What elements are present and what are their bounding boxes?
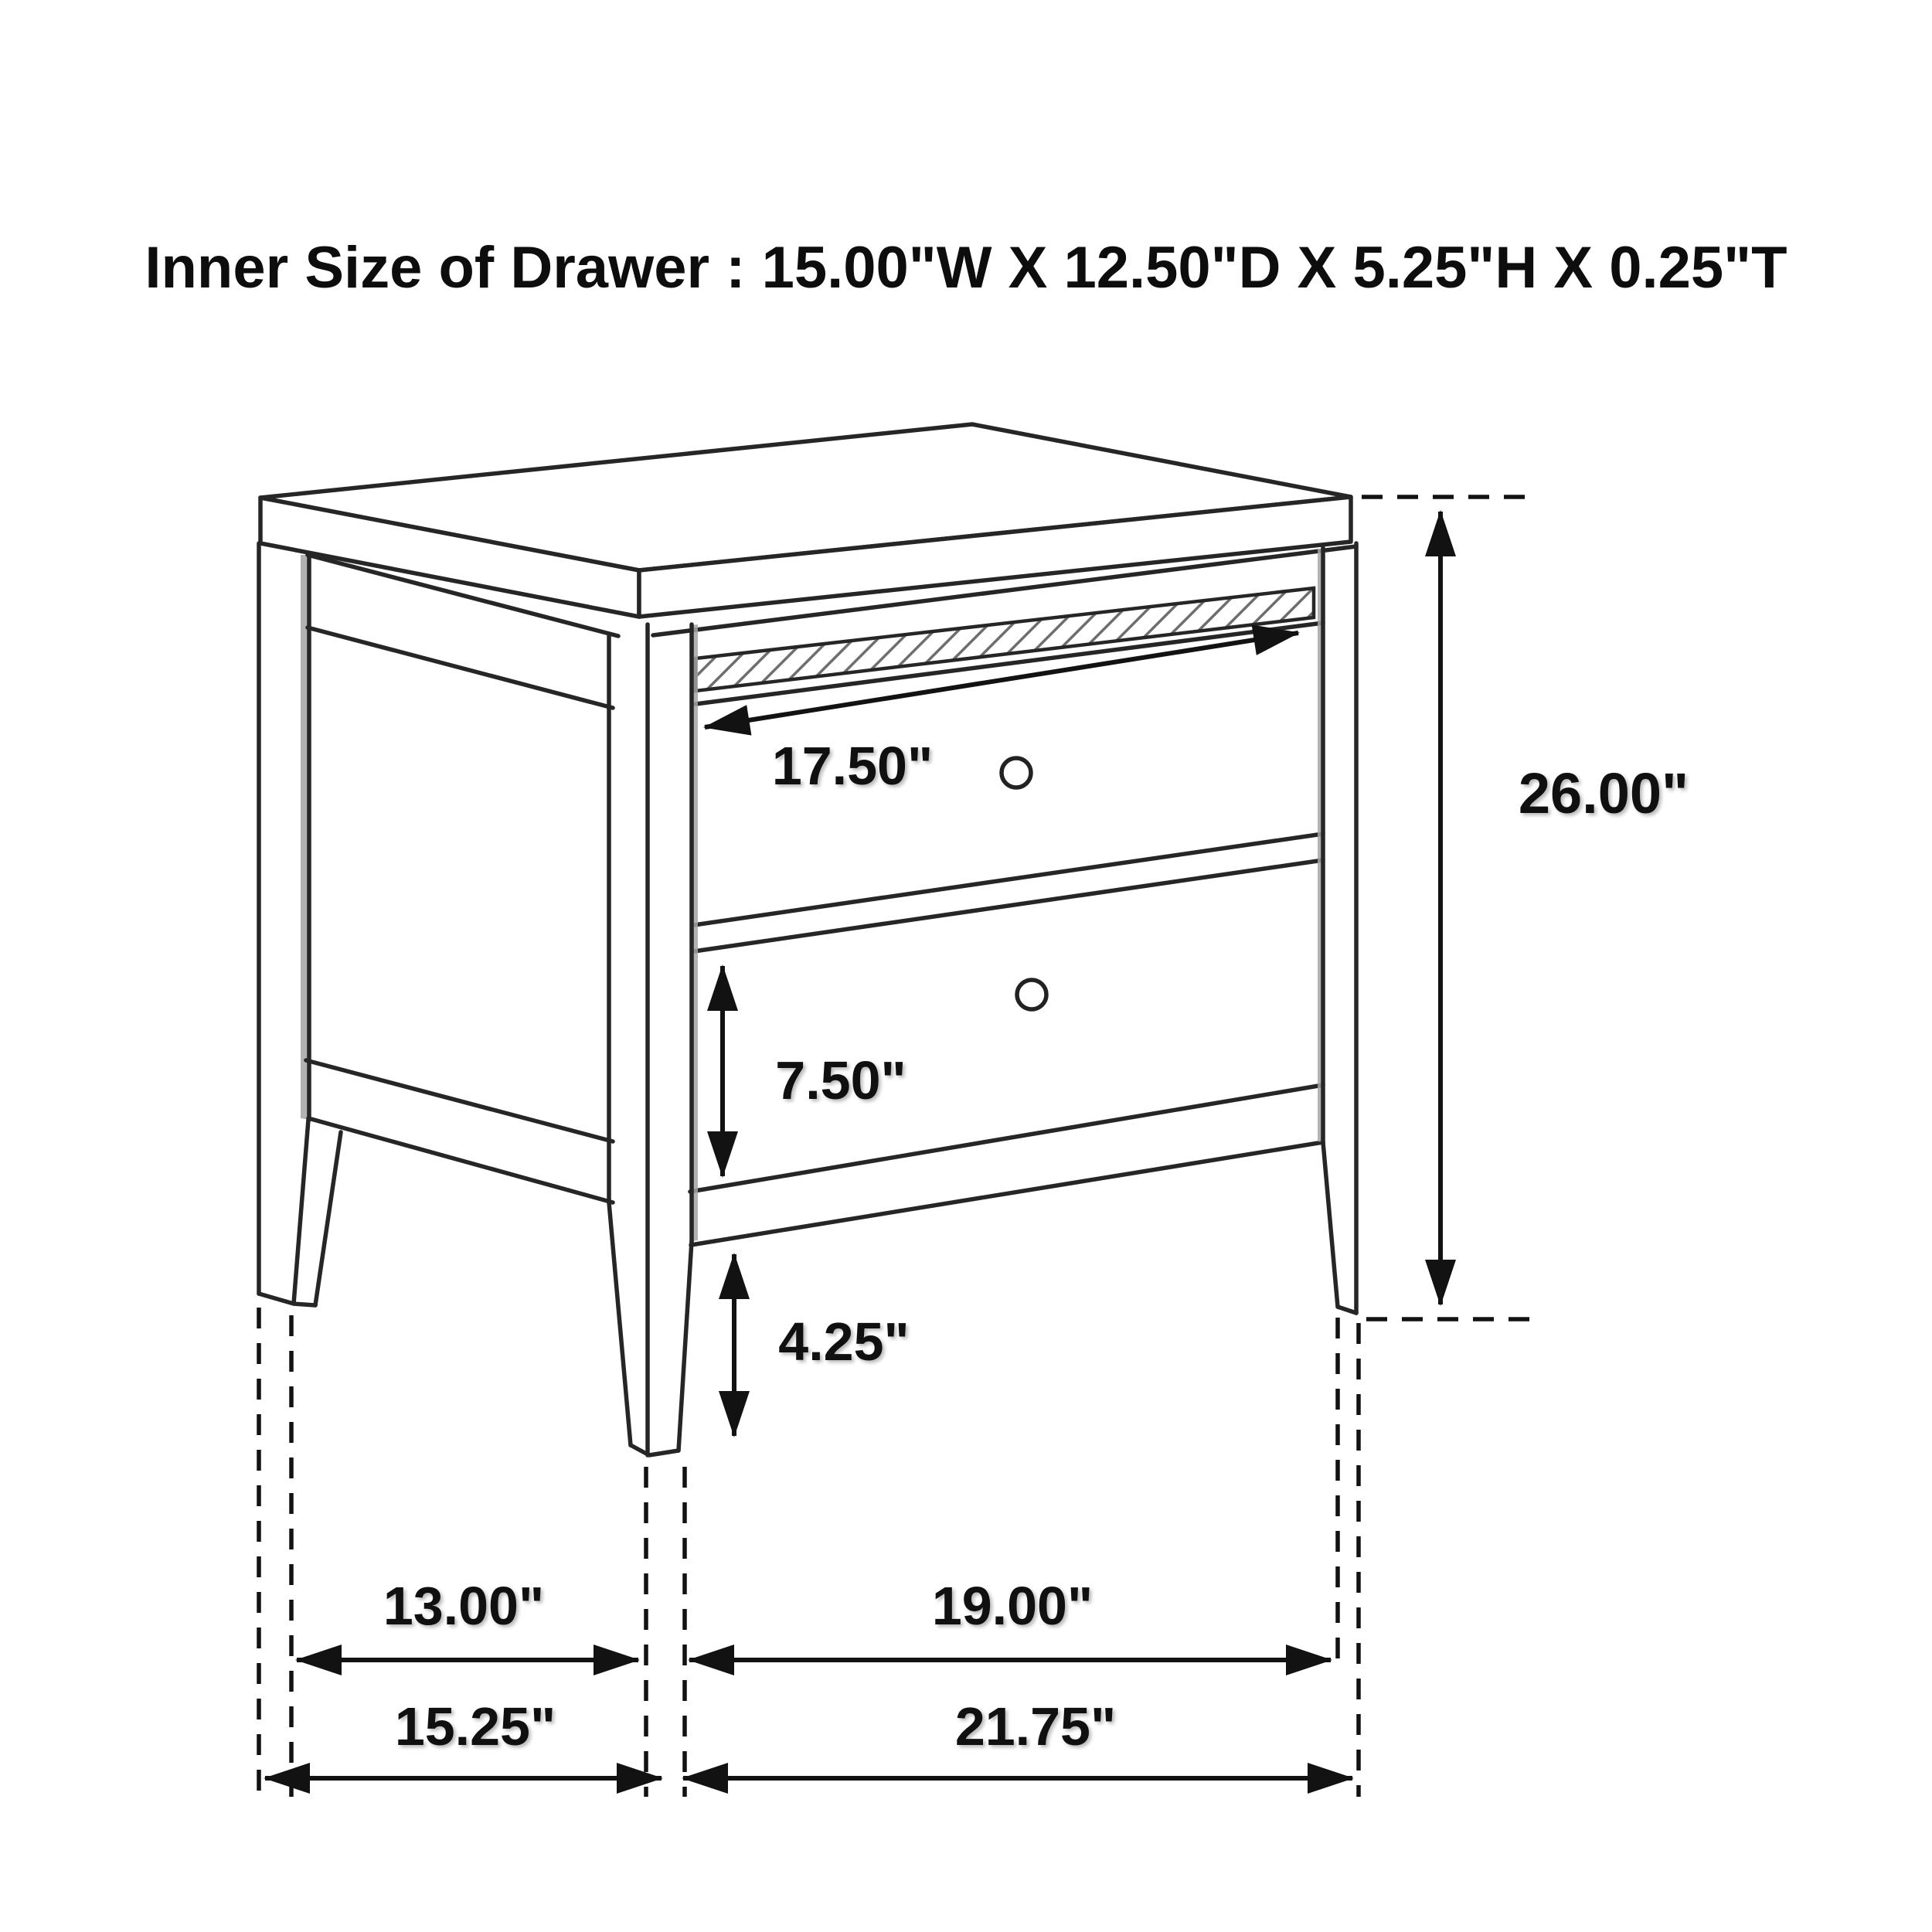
front-right-leg-foot xyxy=(1338,1307,1356,1313)
label-side-overall-depth: 15.25" xyxy=(395,1696,556,1757)
front-right-leg-inner-taper xyxy=(1323,1142,1338,1307)
top-slab xyxy=(260,424,1351,617)
label-leg-clearance: 4.25" xyxy=(778,1311,909,1372)
front-left-leg xyxy=(609,624,692,1455)
reeded-molding-band xyxy=(696,588,1314,691)
label-front-inner-span: 19.00" xyxy=(932,1576,1093,1636)
nightstand-dimension-drawing: Inner Size of Drawer : 15.00"W X 12.50"D… xyxy=(0,0,1932,1932)
drawer-1-knob xyxy=(1002,758,1031,787)
front-face xyxy=(653,543,1356,1313)
front-right-leg xyxy=(1323,1142,1356,1313)
dimension-diagram-page: Inner Size of Drawer : 15.00"W X 12.50"D… xyxy=(0,0,1932,1932)
drawer-1-bottom-edge xyxy=(694,834,1323,925)
side-top-rail-bottom-edge xyxy=(308,628,613,708)
label-drawer-front-height: 7.50" xyxy=(775,1050,906,1111)
back-left-leg-front-taper-edge xyxy=(315,1132,341,1305)
label-side-inner-span: 13.00" xyxy=(383,1576,544,1636)
front-bottom-rail-edge xyxy=(691,1142,1323,1245)
drawer-2-knob xyxy=(1017,980,1046,1009)
label-drawer-opening-width: 17.50" xyxy=(772,736,933,796)
page-title: Inner Size of Drawer : 15.00"W X 12.50"D… xyxy=(145,235,1787,301)
front-left-leg-inner-taper xyxy=(679,1241,692,1451)
label-front-overall-width: 21.75" xyxy=(955,1696,1116,1757)
front-left-leg-side-taper xyxy=(609,1202,631,1445)
back-left-leg xyxy=(259,543,341,1305)
drawer-2-top-edge xyxy=(694,860,1323,951)
dimension-labels: 17.50" 7.50" 4.25" 26.00" 13.00" 19.00" … xyxy=(383,736,1689,1757)
left-side-panel xyxy=(301,555,618,1202)
back-left-leg-foot xyxy=(259,1294,315,1305)
back-left-leg-taper-edge xyxy=(294,1120,308,1304)
label-overall-height: 26.00" xyxy=(1519,761,1689,825)
front-left-leg-foot xyxy=(631,1445,679,1455)
